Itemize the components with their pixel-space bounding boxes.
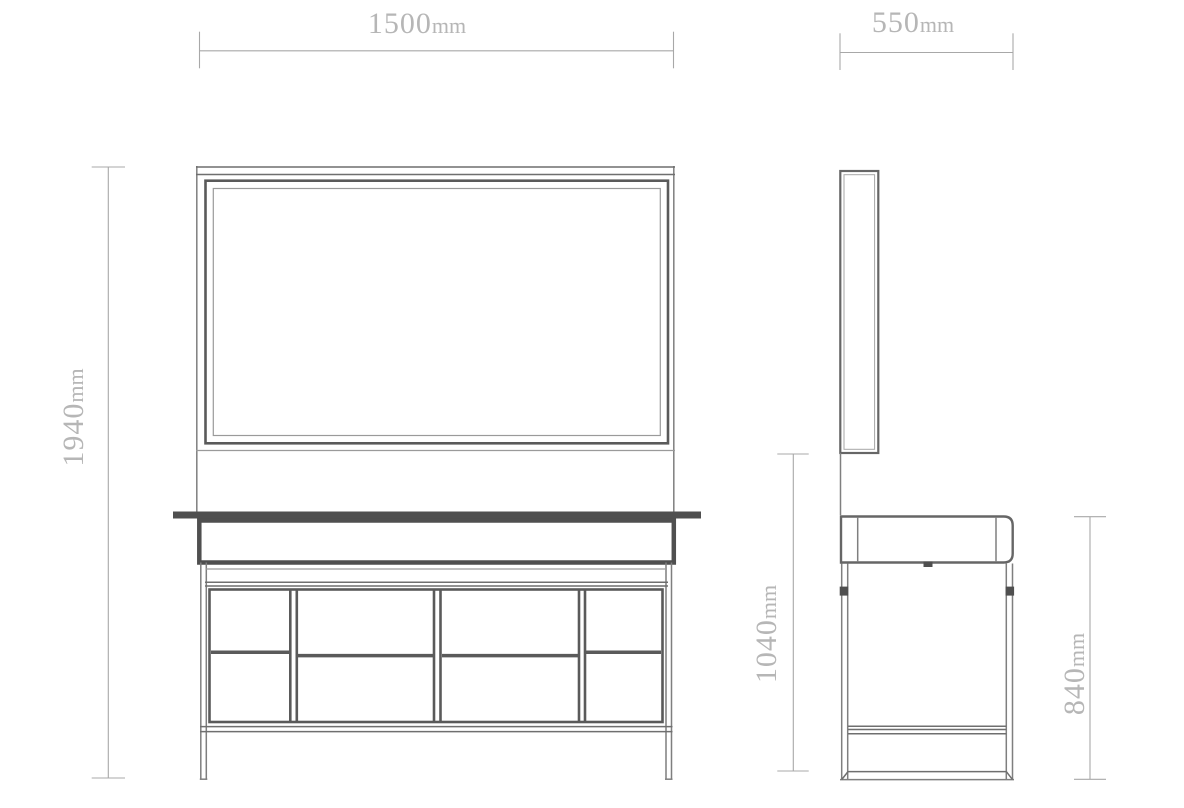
dim-label-total-height: 1940mm [57, 368, 90, 466]
cabinet-grid-dividers [211, 590, 661, 721]
dim-label-front-width: 1500mm [368, 7, 466, 40]
mirror-frame-inner [213, 189, 660, 436]
cabinet-grid-outer [210, 590, 663, 723]
dimension-front-width: 1500mm [200, 7, 674, 68]
dim-label-counter-height: 840mm [1058, 633, 1091, 715]
side-counter-tab [924, 562, 933, 568]
dimensions: 1500mm 550mm 1940mm 1040mm 840mm [57, 6, 1106, 779]
front-cabinet [200, 563, 673, 780]
side-stretcher-bevel-right [1006, 772, 1012, 780]
side-mirror-outer [840, 171, 878, 453]
side-countertop [841, 517, 1013, 568]
side-back-leg-bracket [1006, 587, 1015, 596]
countertop-slab [173, 512, 701, 519]
dimension-counter-height: 840mm [1058, 517, 1106, 780]
side-view [840, 171, 1014, 780]
side-cabinet [840, 564, 1014, 780]
technical-drawing-canvas: 1500mm 550mm 1940mm 1040mm 840mm [0, 0, 1184, 808]
side-mirror-inner [844, 175, 875, 450]
side-counter-profile [841, 517, 1013, 563]
countertop-apron [199, 521, 674, 563]
dimension-total-height: 1940mm [57, 167, 125, 778]
dim-label-mirror-to-floor: 1040mm [750, 585, 783, 683]
front-view [173, 166, 701, 779]
side-front-leg-bracket [840, 587, 849, 596]
side-mirror-panel [840, 171, 878, 515]
dimension-side-depth: 550mm [840, 6, 1013, 70]
dim-label-side-depth: 550mm [872, 6, 954, 39]
front-mirror-unit [196, 166, 675, 512]
mirror-frame-outer [206, 181, 669, 444]
dimension-mirror-to-floor: 1040mm [750, 454, 809, 771]
front-countertop [173, 512, 701, 563]
